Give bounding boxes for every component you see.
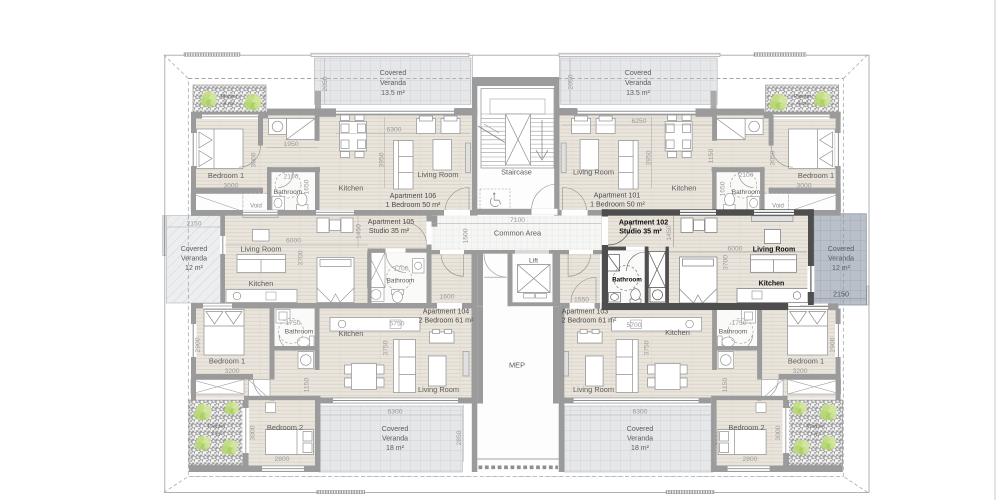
- svg-text:Covered: Covered: [181, 246, 208, 253]
- svg-text:2100: 2100: [739, 172, 754, 179]
- svg-text:3700: 3700: [723, 255, 730, 270]
- svg-text:Apartment 106: Apartment 106: [390, 192, 437, 200]
- svg-text:Kitchen: Kitchen: [665, 328, 690, 337]
- svg-text:1150: 1150: [304, 378, 311, 393]
- svg-text:Covered: Covered: [625, 70, 652, 77]
- svg-text:1950: 1950: [284, 141, 299, 148]
- svg-text:6300: 6300: [633, 409, 648, 416]
- svg-text:Bedroom 1: Bedroom 1: [208, 171, 244, 180]
- svg-text:Veranda: Veranda: [625, 80, 651, 87]
- svg-text:5700: 5700: [627, 322, 642, 329]
- svg-text:3000: 3000: [224, 183, 239, 190]
- svg-text:Veranda: Veranda: [828, 256, 854, 263]
- svg-text:1600: 1600: [440, 294, 455, 301]
- svg-text:Bedroom 1: Bedroom 1: [798, 171, 834, 180]
- svg-text:4 m²: 4 m²: [223, 101, 234, 107]
- svg-text:Bedroom 1: Bedroom 1: [788, 357, 824, 366]
- svg-text:2850: 2850: [456, 430, 463, 445]
- svg-text:Living Room: Living Room: [573, 168, 614, 177]
- svg-text:1550: 1550: [574, 297, 589, 304]
- svg-text:7100: 7100: [510, 217, 525, 224]
- svg-text:Bathroom: Bathroom: [732, 189, 761, 196]
- svg-text:6300: 6300: [387, 127, 402, 134]
- svg-text:Bathroom: Bathroom: [285, 329, 314, 336]
- svg-text:Bathroom: Bathroom: [274, 189, 303, 196]
- svg-text:6300: 6300: [388, 409, 403, 416]
- svg-text:2150: 2150: [833, 290, 849, 299]
- svg-text:Veranda: Veranda: [382, 436, 408, 443]
- svg-text:18 m²: 18 m²: [386, 445, 405, 452]
- svg-text:Common Area: Common Area: [494, 229, 542, 238]
- svg-text:1750: 1750: [286, 320, 301, 327]
- svg-text:1750: 1750: [732, 320, 747, 327]
- svg-text:2900: 2900: [830, 337, 837, 352]
- svg-text:Living Room: Living Room: [240, 245, 281, 254]
- svg-text:2 Bedroom 61 m²: 2 Bedroom 61 m²: [562, 317, 617, 325]
- svg-text:3000: 3000: [797, 183, 812, 190]
- svg-text:3200: 3200: [225, 368, 240, 375]
- svg-text:Living Room: Living Room: [418, 385, 459, 394]
- svg-text:1650: 1650: [304, 179, 311, 194]
- svg-text:1500: 1500: [463, 228, 470, 243]
- svg-text:2850: 2850: [712, 430, 719, 445]
- svg-text:Void: Void: [250, 204, 262, 210]
- svg-text:3000: 3000: [250, 425, 257, 440]
- svg-text:3000: 3000: [775, 425, 782, 440]
- svg-text:Apartment 104: Apartment 104: [423, 308, 470, 316]
- svg-text:1 Bedroom 50 m²: 1 Bedroom 50 m²: [590, 201, 645, 209]
- svg-text:Kitchen: Kitchen: [339, 329, 364, 338]
- svg-text:Planter: Planter: [794, 94, 812, 100]
- svg-text:1150: 1150: [708, 149, 715, 164]
- svg-text:4 m²: 4 m²: [797, 101, 808, 107]
- svg-text:3750: 3750: [644, 340, 651, 355]
- svg-text:Kitchen: Kitchen: [759, 281, 785, 288]
- svg-text:7 m²: 7 m²: [211, 432, 222, 438]
- svg-text:1450: 1450: [356, 224, 363, 239]
- svg-text:Apartment 105: Apartment 105: [368, 218, 415, 226]
- svg-text:Bedroom 1: Bedroom 1: [209, 357, 245, 366]
- svg-text:Apartment 103: Apartment 103: [562, 308, 609, 316]
- svg-text:7 m²: 7 m²: [810, 432, 821, 438]
- svg-text:Kitchen: Kitchen: [249, 279, 274, 288]
- svg-text:2150: 2150: [187, 221, 202, 228]
- svg-text:Studio 35 m²: Studio 35 m²: [369, 227, 410, 235]
- svg-text:2800: 2800: [743, 456, 758, 463]
- svg-text:13.5 m²: 13.5 m²: [626, 90, 650, 97]
- svg-text:Planter: Planter: [220, 94, 237, 100]
- svg-text:1450: 1450: [666, 225, 673, 240]
- svg-text:6250: 6250: [632, 118, 647, 125]
- svg-text:2050: 2050: [568, 74, 575, 89]
- svg-text:2800: 2800: [275, 456, 290, 463]
- svg-text:18 m²: 18 m²: [631, 445, 650, 452]
- svg-text:Living Room: Living Room: [753, 247, 795, 254]
- svg-text:Living Room: Living Room: [573, 385, 614, 394]
- svg-text:Studio 35 m²: Studio 35 m²: [619, 228, 662, 236]
- svg-text:6000: 6000: [728, 246, 743, 253]
- svg-text:Covered: Covered: [627, 426, 654, 433]
- svg-text:Bathroom: Bathroom: [387, 278, 415, 285]
- svg-text:Veranda: Veranda: [181, 256, 207, 263]
- svg-text:Kitchen: Kitchen: [672, 184, 697, 193]
- svg-text:Planter: Planter: [208, 424, 226, 430]
- svg-text:Covered: Covered: [380, 70, 407, 77]
- svg-text:5750: 5750: [390, 321, 405, 328]
- svg-text:6000: 6000: [286, 238, 301, 245]
- svg-text:Kitchen: Kitchen: [339, 184, 364, 193]
- svg-text:12 m²: 12 m²: [185, 265, 204, 272]
- svg-text:Bedroom 2: Bedroom 2: [728, 423, 764, 432]
- svg-text:3200: 3200: [793, 368, 808, 375]
- svg-text:3000: 3000: [251, 152, 258, 167]
- svg-text:Living Room: Living Room: [417, 170, 458, 179]
- svg-text:2 Bedroom 61 m²: 2 Bedroom 61 m²: [419, 317, 474, 325]
- svg-text:Staircase: Staircase: [501, 168, 532, 177]
- svg-text:3700: 3700: [298, 250, 305, 265]
- svg-text:3050: 3050: [770, 150, 777, 165]
- svg-text:1150: 1150: [722, 378, 729, 393]
- svg-text:2900: 2900: [195, 337, 202, 352]
- svg-text:1650: 1650: [720, 181, 727, 196]
- svg-text:13.5 m²: 13.5 m²: [381, 90, 405, 97]
- svg-text:1 Bedroom 50 m²: 1 Bedroom 50 m²: [386, 201, 441, 209]
- svg-text:Veranda: Veranda: [627, 436, 653, 443]
- svg-text:MEP: MEP: [509, 361, 525, 370]
- svg-text:2100: 2100: [284, 174, 299, 181]
- svg-text:Planter: Planter: [806, 424, 824, 430]
- svg-text:Void: Void: [772, 204, 784, 210]
- svg-text:Veranda: Veranda: [380, 80, 406, 87]
- svg-text:3750: 3750: [383, 340, 390, 355]
- svg-text:Apartment 102: Apartment 102: [619, 219, 668, 227]
- svg-text:Lift: Lift: [529, 258, 538, 265]
- svg-text:12 m²: 12 m²: [832, 265, 851, 272]
- svg-text:Bathroom: Bathroom: [719, 329, 748, 336]
- svg-text:1700: 1700: [394, 266, 409, 273]
- svg-text:Apartment 101: Apartment 101: [594, 192, 641, 200]
- svg-text:Covered: Covered: [382, 426, 409, 433]
- svg-text:Bedroom 2: Bedroom 2: [267, 423, 303, 432]
- svg-text:Bathroom: Bathroom: [612, 277, 642, 284]
- svg-text:Covered: Covered: [828, 246, 855, 253]
